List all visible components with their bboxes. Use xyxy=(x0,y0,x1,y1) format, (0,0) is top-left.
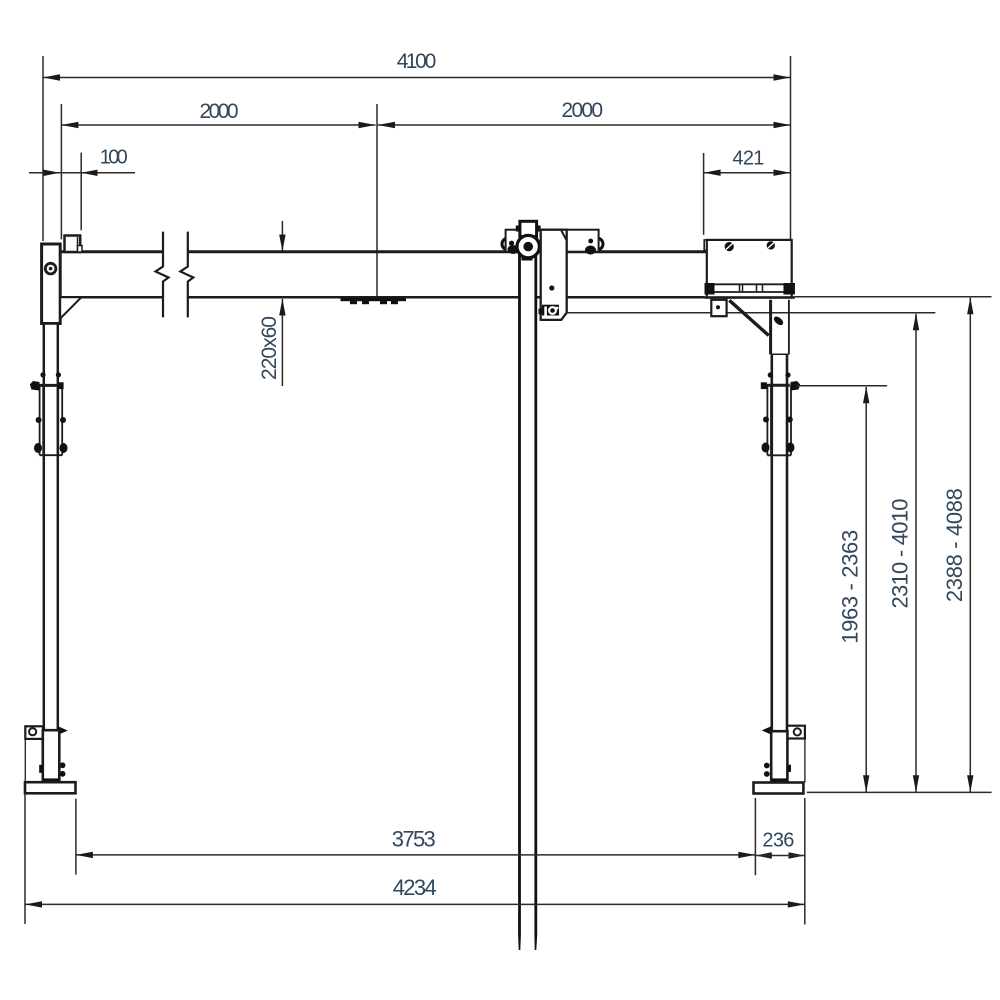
svg-text:4 100: 4 100 xyxy=(397,50,437,73)
svg-text:2388 - 4088: 2388 - 4088 xyxy=(942,488,967,602)
svg-text:4234: 4234 xyxy=(393,875,437,900)
svg-text:2000: 2000 xyxy=(562,99,604,122)
svg-text:2310 - 4010: 2310 - 4010 xyxy=(887,499,912,609)
svg-text:1963 - 2363: 1963 - 2363 xyxy=(838,530,863,644)
svg-text:2000: 2000 xyxy=(200,100,239,123)
svg-text:236: 236 xyxy=(762,830,794,852)
svg-text:421: 421 xyxy=(732,148,764,170)
svg-text:220x60: 220x60 xyxy=(258,316,281,380)
svg-text:3753: 3753 xyxy=(392,826,436,851)
svg-text:100: 100 xyxy=(100,147,128,169)
